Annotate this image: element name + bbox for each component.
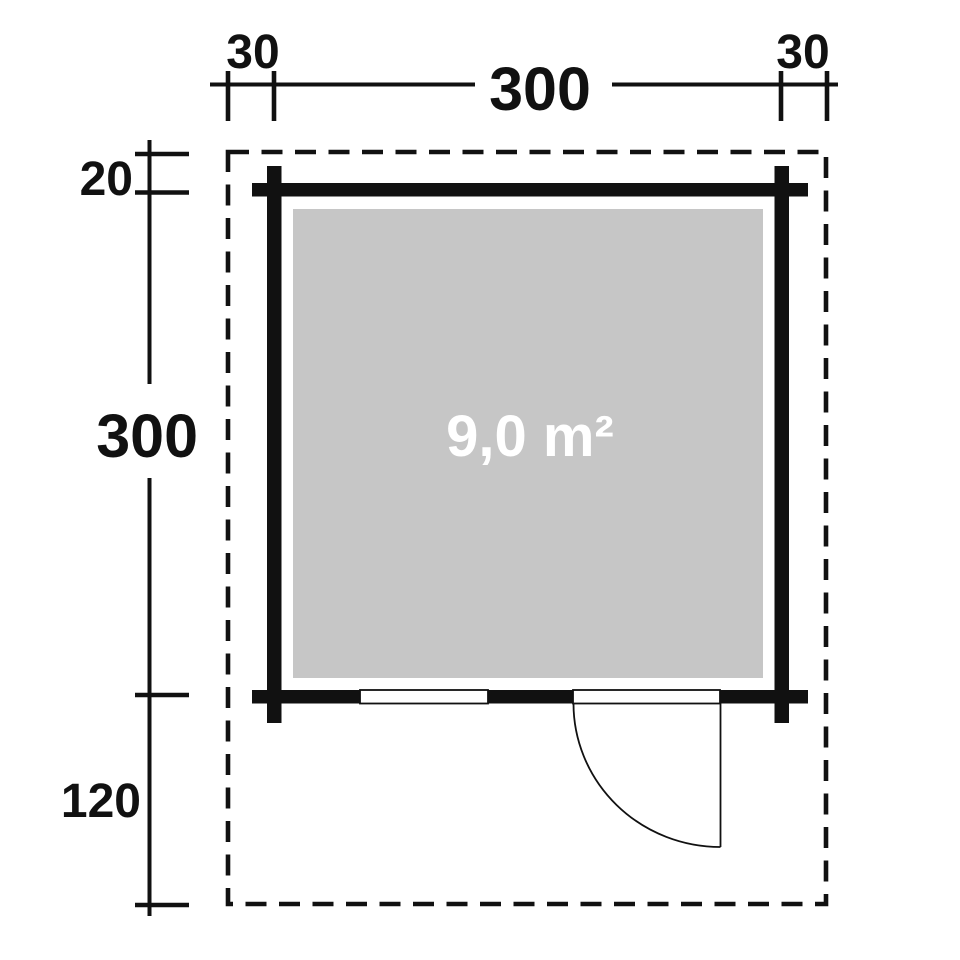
wall-front <box>252 690 808 704</box>
dimension-label-overhang-right: 30 <box>776 26 829 79</box>
dimension-label-overhang-rear: 20 <box>80 153 133 206</box>
dimension-label-depth: 300 <box>96 402 198 470</box>
wall-left <box>267 166 282 723</box>
wall-right <box>775 166 790 723</box>
dimension-left: 20 300 120 <box>61 140 198 916</box>
dimension-top: 30 300 30 <box>210 26 838 123</box>
floor-plan-page: 30 300 30 20 300 120 9,0 m² <box>0 0 960 960</box>
door-opening <box>573 690 720 704</box>
door <box>574 704 721 848</box>
wall-rear <box>252 183 808 197</box>
area-label: 9,0 m² <box>446 404 614 469</box>
floor-plan-diagram: 30 300 30 20 300 120 9,0 m² <box>0 0 960 960</box>
dimension-label-overhang-left: 30 <box>226 26 279 79</box>
window-opening <box>360 690 488 704</box>
door-swing-arc <box>574 704 721 848</box>
dimension-label-width: 300 <box>489 55 591 123</box>
dimension-label-overhang-front: 120 <box>61 775 141 828</box>
